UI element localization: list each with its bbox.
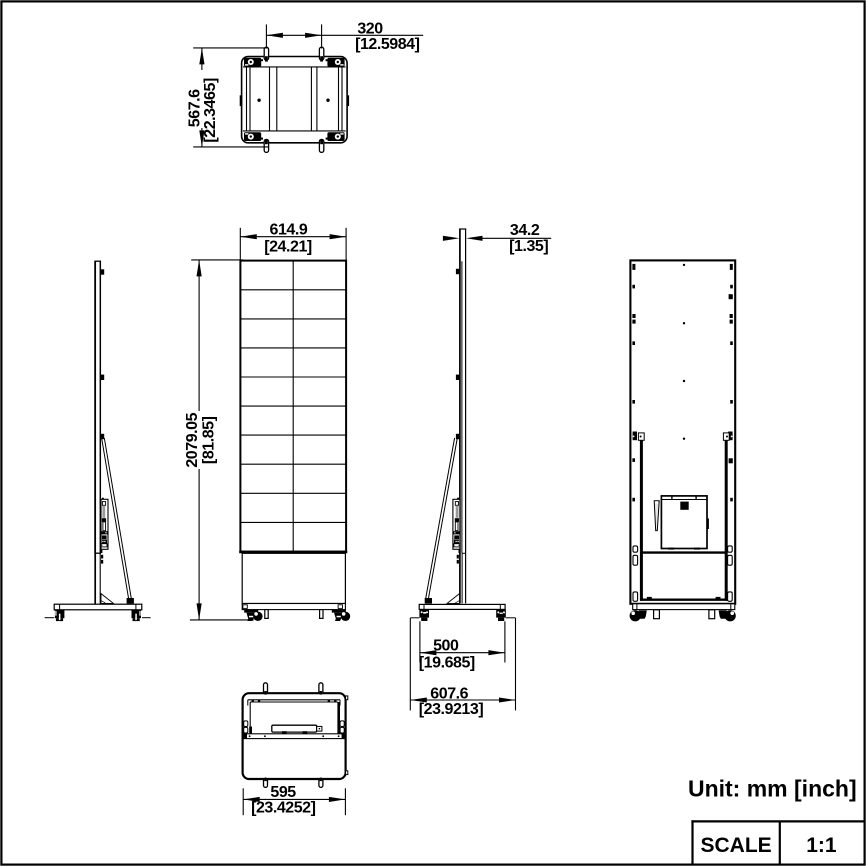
svg-text:SCALE: SCALE	[701, 834, 772, 857]
svg-text:2079.05: 2079.05	[184, 412, 201, 467]
svg-text:[1.35]: [1.35]	[509, 238, 548, 255]
svg-text:[22.3465]: [22.3465]	[202, 78, 219, 143]
svg-text:34.2: 34.2	[510, 222, 540, 239]
svg-text:[23.4252]: [23.4252]	[251, 800, 316, 817]
svg-text:[81.85]: [81.85]	[201, 416, 218, 464]
svg-text:[19.685]: [19.685]	[419, 655, 475, 672]
svg-text:Unit: mm [inch]: Unit: mm [inch]	[688, 776, 857, 802]
svg-text:[12.5984]: [12.5984]	[355, 36, 420, 53]
svg-text:614.9: 614.9	[270, 222, 308, 239]
svg-text:595: 595	[270, 784, 296, 801]
svg-text:[23.9213]: [23.9213]	[419, 701, 484, 718]
svg-text:500: 500	[433, 637, 459, 654]
svg-text:[24.21]: [24.21]	[264, 239, 312, 256]
svg-text:607.6: 607.6	[430, 685, 468, 702]
svg-text:1:1: 1:1	[806, 834, 837, 857]
svg-text:320: 320	[357, 20, 383, 37]
